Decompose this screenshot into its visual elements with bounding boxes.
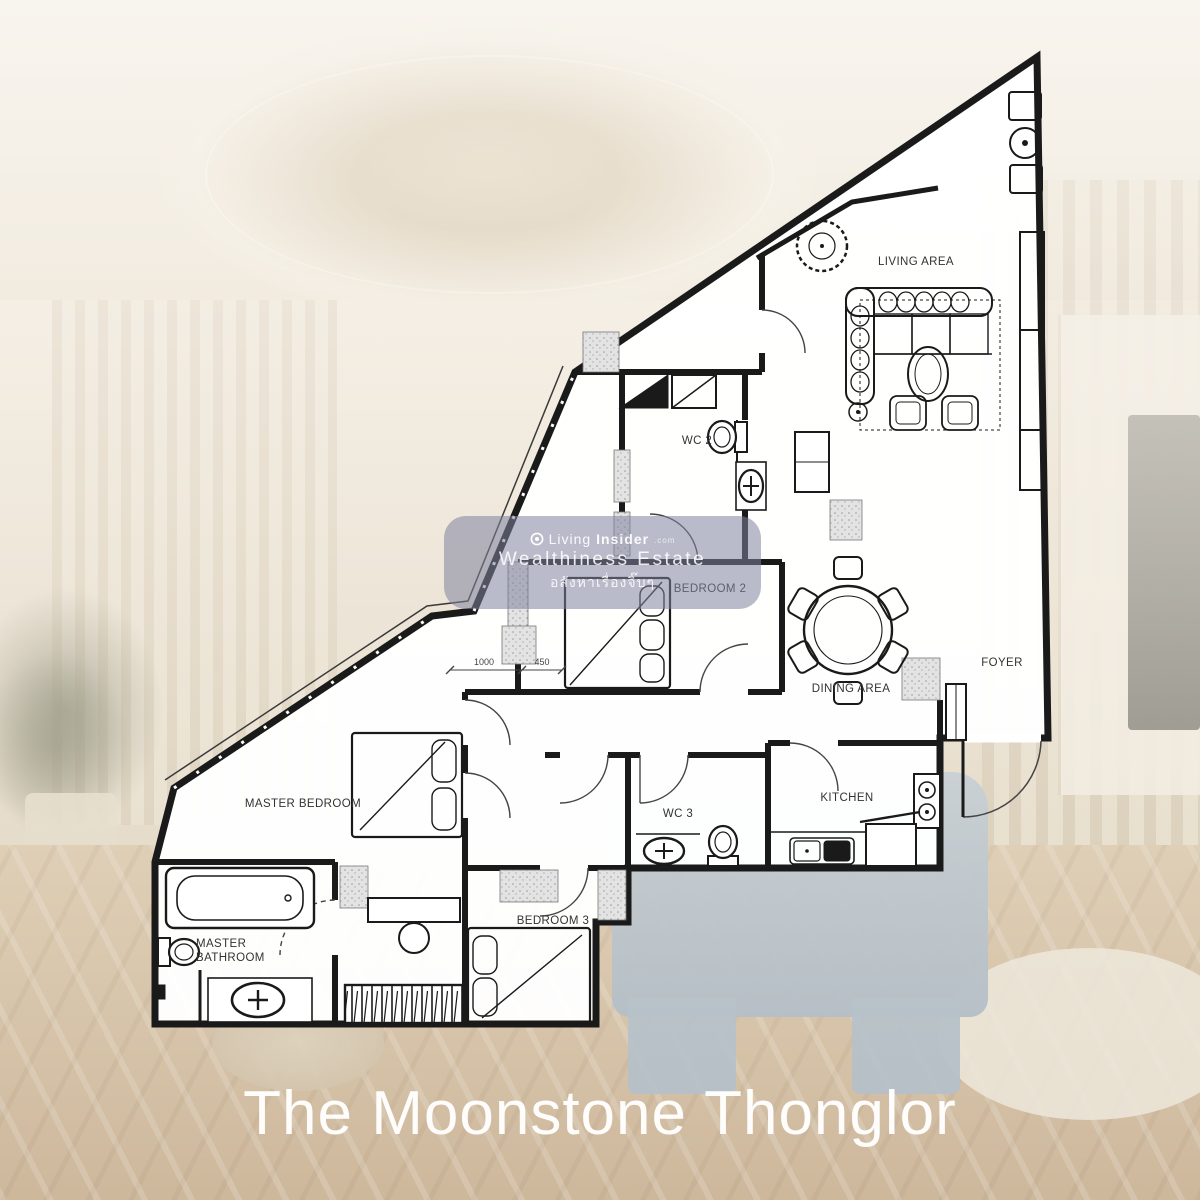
wardrobe-symbol: [345, 985, 463, 1023]
label-master-bathroom-line1: MASTER: [196, 938, 246, 950]
label-master-bedroom: MASTER BEDROOM: [245, 798, 361, 810]
livinginsider-logo-icon: [530, 532, 544, 546]
page-title: The Moonstone Thonglor: [0, 1078, 1200, 1149]
label-wc3: WC 3: [663, 808, 693, 820]
watermark-brand-bold: Insider: [596, 531, 649, 547]
label-dining-area: DINING AREA: [812, 683, 891, 695]
entrance-door: [963, 738, 1041, 817]
label-kitchen: KITCHEN: [820, 792, 873, 804]
watermark-brand: LivingInsider.com: [530, 531, 676, 547]
bathtub-symbol: [166, 868, 314, 928]
label-wc2: WC 2: [682, 435, 712, 447]
watermark: LivingInsider.com Wealthiness Estate อสั…: [444, 516, 761, 609]
wc3-toilet-symbol: [708, 826, 738, 866]
wc2-sink-symbol: [736, 462, 766, 510]
label-bedroom3: BEDROOM 3: [517, 915, 590, 927]
wc2-toilet-symbol: [708, 421, 747, 453]
label-living-area: LIVING AREA: [878, 256, 954, 268]
stove-symbol: [914, 774, 940, 828]
dimension-1000: 1000: [474, 657, 494, 667]
watermark-brand-prefix: Living: [549, 531, 592, 547]
watermark-brand-tld: .com: [654, 536, 675, 545]
label-foyer: FOYER: [981, 657, 1023, 669]
watermark-agency: Wealthiness Estate: [499, 549, 706, 571]
bathroom-sink-symbol: [208, 978, 312, 1022]
label-master-bathroom-line2: BATHROOM: [196, 952, 265, 964]
watermark-thai-tagline: อสังหาเรื่องจิ๊บๆ: [550, 572, 655, 594]
dimension-450: 450: [534, 657, 549, 667]
